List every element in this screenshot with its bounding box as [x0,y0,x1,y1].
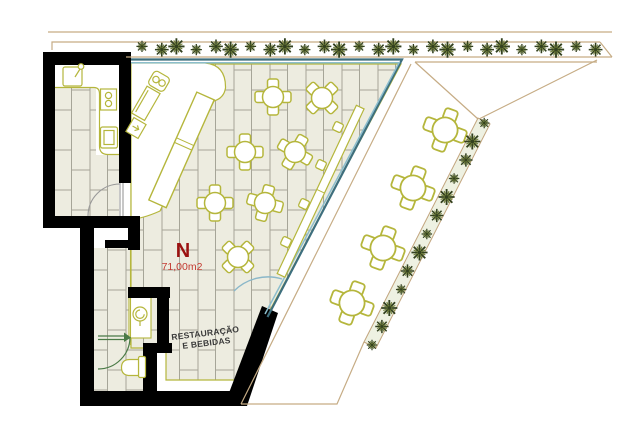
wall-top [43,52,131,65]
wall-left-upper [43,52,55,228]
terrace-table [324,275,379,330]
hedge-plant [439,41,456,58]
floor-plan-page: N 71,00m2 RESTAURAÇÃO E BEBIDAS [0,0,640,427]
hedge-plant [331,41,348,58]
hedge-plant [408,44,419,55]
kitchen-appliance-icon [101,127,118,148]
hedge-plant [191,44,202,55]
wall-left-lower [80,216,94,406]
hedge-plant [168,38,185,55]
hedge-plant [480,43,494,57]
hedge-plant [589,43,603,57]
stove-icon [101,89,117,110]
wall-wc-right-upper [157,287,169,348]
area-label: 71,00m2 [162,261,203,273]
top-hedge-group [136,38,602,58]
terrace-notch-right [479,60,597,119]
wall-vestibule-bottom [105,240,130,248]
wall-kitchen-divider [119,52,131,183]
hedge-plant [385,38,402,55]
wall-bottom [80,391,235,406]
hedge-plant [277,38,294,55]
floor-plan-svg: N 71,00m2 RESTAURAÇÃO E BEBIDAS [0,0,640,427]
hedge-plant [548,41,565,58]
hedge-plant [372,43,386,57]
hedge-plant [299,44,310,55]
kitchen-sink-icon [63,64,84,86]
hedge-plant [263,43,277,57]
hedge-plant [155,43,169,57]
room-tag: N [176,240,190,262]
hedge-plant [493,38,510,55]
hedge-plant [222,41,239,58]
hedge-plant [516,44,527,55]
